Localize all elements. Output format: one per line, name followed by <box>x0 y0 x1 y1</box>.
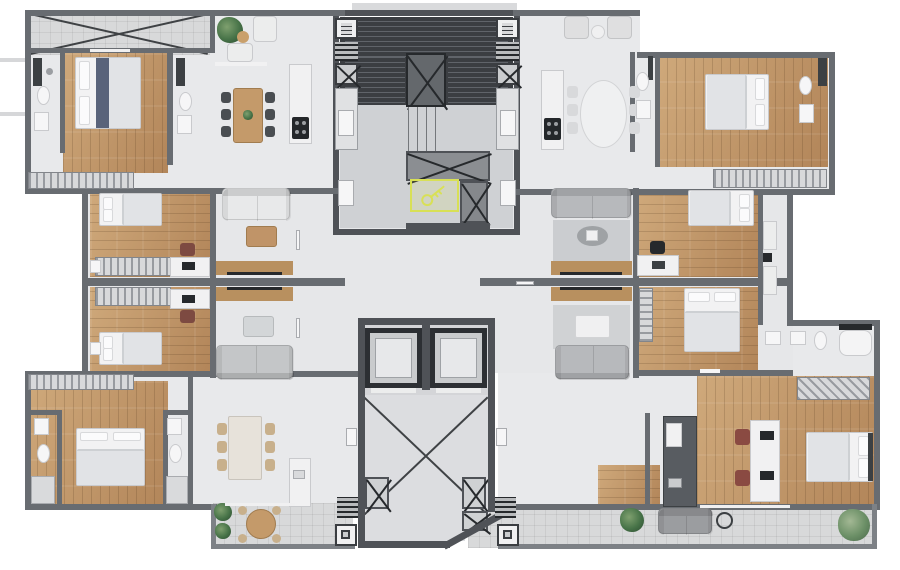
lounge-table-top-right <box>591 25 605 39</box>
elevator-block-wall-left <box>358 318 365 546</box>
toilet-tl-bath-left <box>37 86 50 105</box>
bed-headboard <box>868 433 873 481</box>
sofa-arm <box>556 346 561 380</box>
dining-table-bottom-left <box>228 416 262 480</box>
dining-chair-bl-6 <box>265 459 275 471</box>
laptop-mid-left-lower <box>182 295 195 303</box>
sofa-arm <box>659 509 664 535</box>
door-core-right-lower <box>500 180 516 206</box>
elevator-sill-right <box>436 388 481 393</box>
sill-terrace-top-left <box>90 49 130 52</box>
sink-master-bath-2 <box>790 331 806 345</box>
elevator-block-wall-top <box>358 318 495 325</box>
sofa-cushion-divider <box>256 346 257 373</box>
wall-top-right-east <box>829 52 835 195</box>
bed-duvet <box>707 75 747 129</box>
elevator-block-wall-bottom <box>358 541 450 548</box>
laptop-mid-right-upper <box>652 261 665 269</box>
dining-chair-bl-2 <box>217 441 227 453</box>
bed-pillow <box>739 194 750 208</box>
tv-mid-left-upper <box>227 272 282 275</box>
wardrobe-bottom-left <box>28 374 134 390</box>
entry-stub-line-lower <box>0 112 25 116</box>
bed-duvet <box>690 191 731 225</box>
lounge-chair-top-left-2 <box>227 43 253 62</box>
bed-mid-left-upper <box>99 193 162 226</box>
wall-mid-right-inner <box>633 188 639 378</box>
dining-chair-tl-4 <box>265 92 275 103</box>
sofa-mid-right-lower <box>555 345 629 379</box>
dining-chair-bl-5 <box>265 441 275 453</box>
page: { "meta": {"type":"architectural-floor-p… <box>0 0 900 570</box>
wall-bl-bath2-north <box>163 410 190 415</box>
desk-chair-mid-right-upper <box>650 241 665 254</box>
vanity-tr-bath-left <box>648 56 653 80</box>
coffee-table-mid-right-lower <box>575 315 610 338</box>
monitor-bottom-right-2 <box>760 471 774 480</box>
kitchen-sink-bottom-right <box>668 478 682 488</box>
wall-top-left-west <box>25 10 31 194</box>
wall-tl-terrace-east <box>210 10 215 53</box>
burner <box>295 130 299 134</box>
bed-mid-right-upper <box>688 190 754 226</box>
sofa-arm <box>223 189 228 221</box>
hall-cabinet-upper <box>763 221 777 250</box>
tv-mid-right-lower <box>560 287 622 290</box>
bed-duvet <box>77 449 144 485</box>
dining-chair-tr-6 <box>629 122 640 134</box>
door-core-side-left <box>346 428 357 446</box>
dining-chair-tl-5 <box>265 109 275 120</box>
wall-tl-bath-east <box>60 50 65 153</box>
bed-pillow <box>113 432 141 441</box>
sofa-arm <box>708 509 713 535</box>
terrace-table-bottom-left <box>246 509 276 539</box>
wall-tl-bedroom-east <box>167 50 173 165</box>
bed-pillow <box>739 208 750 222</box>
sofa-cushion-divider <box>257 196 258 221</box>
lounge-pouf-top-left <box>237 31 249 43</box>
cooktop-top-right <box>544 118 561 140</box>
terrace-chair-bl-2 <box>272 506 281 515</box>
bed-bottom-right <box>806 432 873 482</box>
toilet-tr-bath-right <box>799 76 812 95</box>
sill-entry-bottom-right <box>700 369 720 373</box>
sink-bl-bath-left <box>34 418 49 435</box>
burner <box>295 121 299 125</box>
dining-chair-tl-6 <box>265 126 275 137</box>
dining-chair-tl-1 <box>221 92 231 103</box>
wall-right-east <box>874 320 880 510</box>
bed-bottom-left <box>76 428 145 486</box>
office-chair-bottom-right-2 <box>735 470 750 486</box>
sofa-backrest <box>217 373 294 380</box>
bed-pillow <box>688 292 710 302</box>
bed-pillow <box>755 78 765 100</box>
kitchen-counter-bottom-left <box>289 458 311 507</box>
meter-box-left-panel <box>341 530 350 539</box>
door-unit-mid-left-lower <box>296 318 300 338</box>
kitchen-sink-bottom-left <box>293 470 305 479</box>
hall-cabinet-dark <box>763 253 772 262</box>
wardrobe-top-left <box>28 172 134 189</box>
shower-bl-bath-left <box>31 476 55 504</box>
sofa-arm <box>625 346 630 380</box>
wardrobe-mid-left-upper <box>95 257 171 276</box>
counter-ledge-top-left <box>215 62 267 66</box>
toilet-tl-bath-right <box>179 92 192 111</box>
wall-top-right-north <box>637 52 835 58</box>
sofa-cushion-divider <box>592 196 593 219</box>
elevator-block-wall-right <box>488 318 495 512</box>
door-core-side-right <box>496 428 507 446</box>
laptop-mid-left-upper <box>182 262 195 270</box>
vanity-tr-bath-right <box>818 58 827 86</box>
wardrobe-mid-left-lower <box>95 287 171 306</box>
table-plant-top-left <box>243 110 253 120</box>
elevator-left <box>365 328 422 388</box>
toilet-bl-bath-right <box>169 444 182 463</box>
sink-tl-bath-left <box>34 112 49 131</box>
sofa-arm <box>552 189 557 219</box>
tv-mid-left-lower <box>227 287 282 290</box>
wall-mid-right-east <box>787 195 793 326</box>
meter-louver-right <box>495 497 516 518</box>
sofa-cushion-divider <box>593 346 594 373</box>
entry-stub-line-upper <box>0 58 25 62</box>
bed-mid-left-lower <box>99 332 162 365</box>
key-icon <box>412 181 457 210</box>
desk-chair-mid-left-lower <box>180 310 195 323</box>
terrace-plant-bottom-right-west <box>620 508 644 532</box>
washer-tr-bath-left <box>636 100 651 119</box>
elevator-right <box>430 328 487 388</box>
bed-pillow <box>80 432 108 441</box>
washer-tl-bath-right <box>177 115 192 134</box>
sink-tr-bath-right <box>799 104 814 123</box>
sofa-arm <box>217 346 222 380</box>
sink-master-bath-1 <box>765 331 781 345</box>
key-access-highlight[interactable] <box>410 179 459 212</box>
vanity-tl-bath-right <box>176 58 185 86</box>
bed-duvet <box>808 433 850 481</box>
burner <box>547 122 551 126</box>
shower-head-tl <box>46 68 53 75</box>
toilet-tr-bath-left <box>636 72 649 91</box>
wall-bl-hall-east <box>188 373 193 507</box>
sink-mid-left-upper <box>90 260 101 273</box>
bed-pillow <box>79 61 90 90</box>
wall-top-left-north <box>25 10 345 16</box>
burner <box>554 131 558 135</box>
bathtub-master-bath <box>839 330 872 356</box>
terrace-side-table-bottom-right <box>716 512 733 529</box>
wall-bl-bath-east <box>57 413 62 507</box>
appliance-oven-left-grill <box>341 23 352 35</box>
bed-pillow <box>103 209 113 222</box>
elevator-cab <box>375 338 412 378</box>
sofa-mid-left-lower <box>216 345 293 379</box>
sofa-mid-right-upper <box>551 188 631 218</box>
tray-mid-right-upper <box>586 230 598 241</box>
terrace-chair-bl-3 <box>238 534 247 543</box>
sofa-backrest <box>556 373 630 380</box>
door-unit-mid-left-upper <box>296 230 300 250</box>
appliance-fridge-left <box>335 42 358 61</box>
bed-duvet <box>685 311 739 351</box>
bed-duvet <box>122 194 161 225</box>
wardrobe-mid-right-master <box>639 288 653 342</box>
terrace-chair-bl-4 <box>272 534 281 543</box>
burner <box>302 121 306 125</box>
utility-shaft-left <box>335 63 358 85</box>
washer-bl-bath-right <box>167 418 182 435</box>
dining-chair-tr-3 <box>567 122 578 134</box>
wall-terrace-bl-south <box>211 544 355 549</box>
lounge-chair-top-right-2 <box>607 16 632 39</box>
terrace-chair-bl-1 <box>238 506 247 515</box>
appliance-fridge-right <box>496 42 519 61</box>
sill-terrace-bottom-right <box>700 505 790 508</box>
lounge-chair-top-right-1 <box>564 16 589 39</box>
bed-pillow <box>103 348 113 361</box>
meter-louver-left <box>337 497 358 518</box>
terrace-sofa-bottom-right <box>658 508 712 534</box>
fridge-bottom-right <box>666 423 682 447</box>
bed-top-right <box>705 74 769 130</box>
dining-chair-tr-1 <box>567 86 578 98</box>
bed-mid-right-master <box>684 288 740 352</box>
sill-terrace-bottom-left <box>225 503 295 506</box>
wall-br-kitchen-west <box>645 413 650 507</box>
floor-plan-canvas <box>0 0 900 570</box>
dining-chair-bl-3 <box>217 459 227 471</box>
bed-duvet <box>122 333 161 364</box>
burner <box>547 131 551 135</box>
dining-chair-bl-4 <box>265 423 275 435</box>
appliance-oven-right-grill <box>502 23 513 35</box>
tv-mid-right-upper <box>560 272 622 275</box>
shaft-small-right <box>462 477 486 509</box>
hall-cabinet-lower <box>763 266 777 295</box>
sofa-backrest <box>223 189 291 196</box>
dining-chair-tr-2 <box>567 104 578 116</box>
door-core-left-upper <box>338 110 354 136</box>
burner <box>302 130 306 134</box>
wall-terrace-br-east <box>872 504 877 548</box>
wood-floor-entry-bottom-right <box>598 465 660 507</box>
sink-mid-left-lower <box>90 342 101 355</box>
bed-pillow <box>79 96 90 125</box>
elevator-sill-left <box>371 388 416 393</box>
office-chair-bottom-right-1 <box>735 429 750 445</box>
bed-pillow <box>714 292 736 302</box>
terrace-plant-bottom-left-2 <box>215 523 231 539</box>
desk-chair-mid-left-upper <box>180 243 195 256</box>
door-core-right-upper <box>500 110 516 136</box>
burner <box>554 122 558 126</box>
lounge-chair-top-left-1 <box>253 16 277 42</box>
elevator-divider-wall <box>422 322 430 390</box>
sofa-mid-left-upper <box>222 188 290 220</box>
wall-tr-bedroom-west <box>655 52 660 167</box>
terrace-bottom-left-floor <box>213 503 353 548</box>
sofa-backrest <box>659 509 713 516</box>
dining-chair-tl-3 <box>221 126 231 137</box>
utility-shaft-right <box>496 63 519 85</box>
bathtub-shelf-master-bath <box>839 324 872 330</box>
cooktop-top-left <box>292 117 309 139</box>
door-unit-mid-right <box>516 281 534 285</box>
toilet-master-bath <box>814 331 827 350</box>
monitor-bottom-right-1 <box>760 431 774 440</box>
bed-pillow <box>755 104 765 126</box>
core-bottom-floor <box>365 513 465 541</box>
wall-terrace-br-south <box>498 544 877 549</box>
shower-bl-bath-right <box>166 476 188 504</box>
dining-chair-tl-2 <box>221 109 231 120</box>
wardrobe-bottom-right <box>797 377 870 400</box>
toilet-bl-bath-left <box>37 444 50 463</box>
bed-top-left <box>75 57 141 129</box>
dining-chair-bl-1 <box>217 423 227 435</box>
elevator-cab <box>440 338 477 378</box>
terrace-plant-bottom-right-east <box>838 509 870 541</box>
sofa-arm <box>289 346 294 380</box>
wall-tr-bath-west <box>630 52 635 152</box>
vanity-tl-bath-left <box>33 58 42 86</box>
shaft-small-left <box>365 477 389 509</box>
bed-throw <box>96 58 109 128</box>
coffee-table-mid-left-lower <box>243 316 274 337</box>
door-core-left-lower <box>338 180 354 206</box>
sofa-cushion-divider <box>686 516 687 535</box>
coffee-table-mid-left-upper <box>246 226 277 247</box>
sofa-arm <box>627 189 632 219</box>
pergola-cross-lines <box>30 13 208 53</box>
sofa-arm <box>286 189 291 221</box>
dining-table-top-right <box>580 80 627 148</box>
wall-bl-bath-north <box>25 410 62 415</box>
meter-box-right-panel <box>503 530 512 539</box>
sofa-backrest <box>552 189 632 196</box>
wardrobe-top-right <box>713 169 827 188</box>
